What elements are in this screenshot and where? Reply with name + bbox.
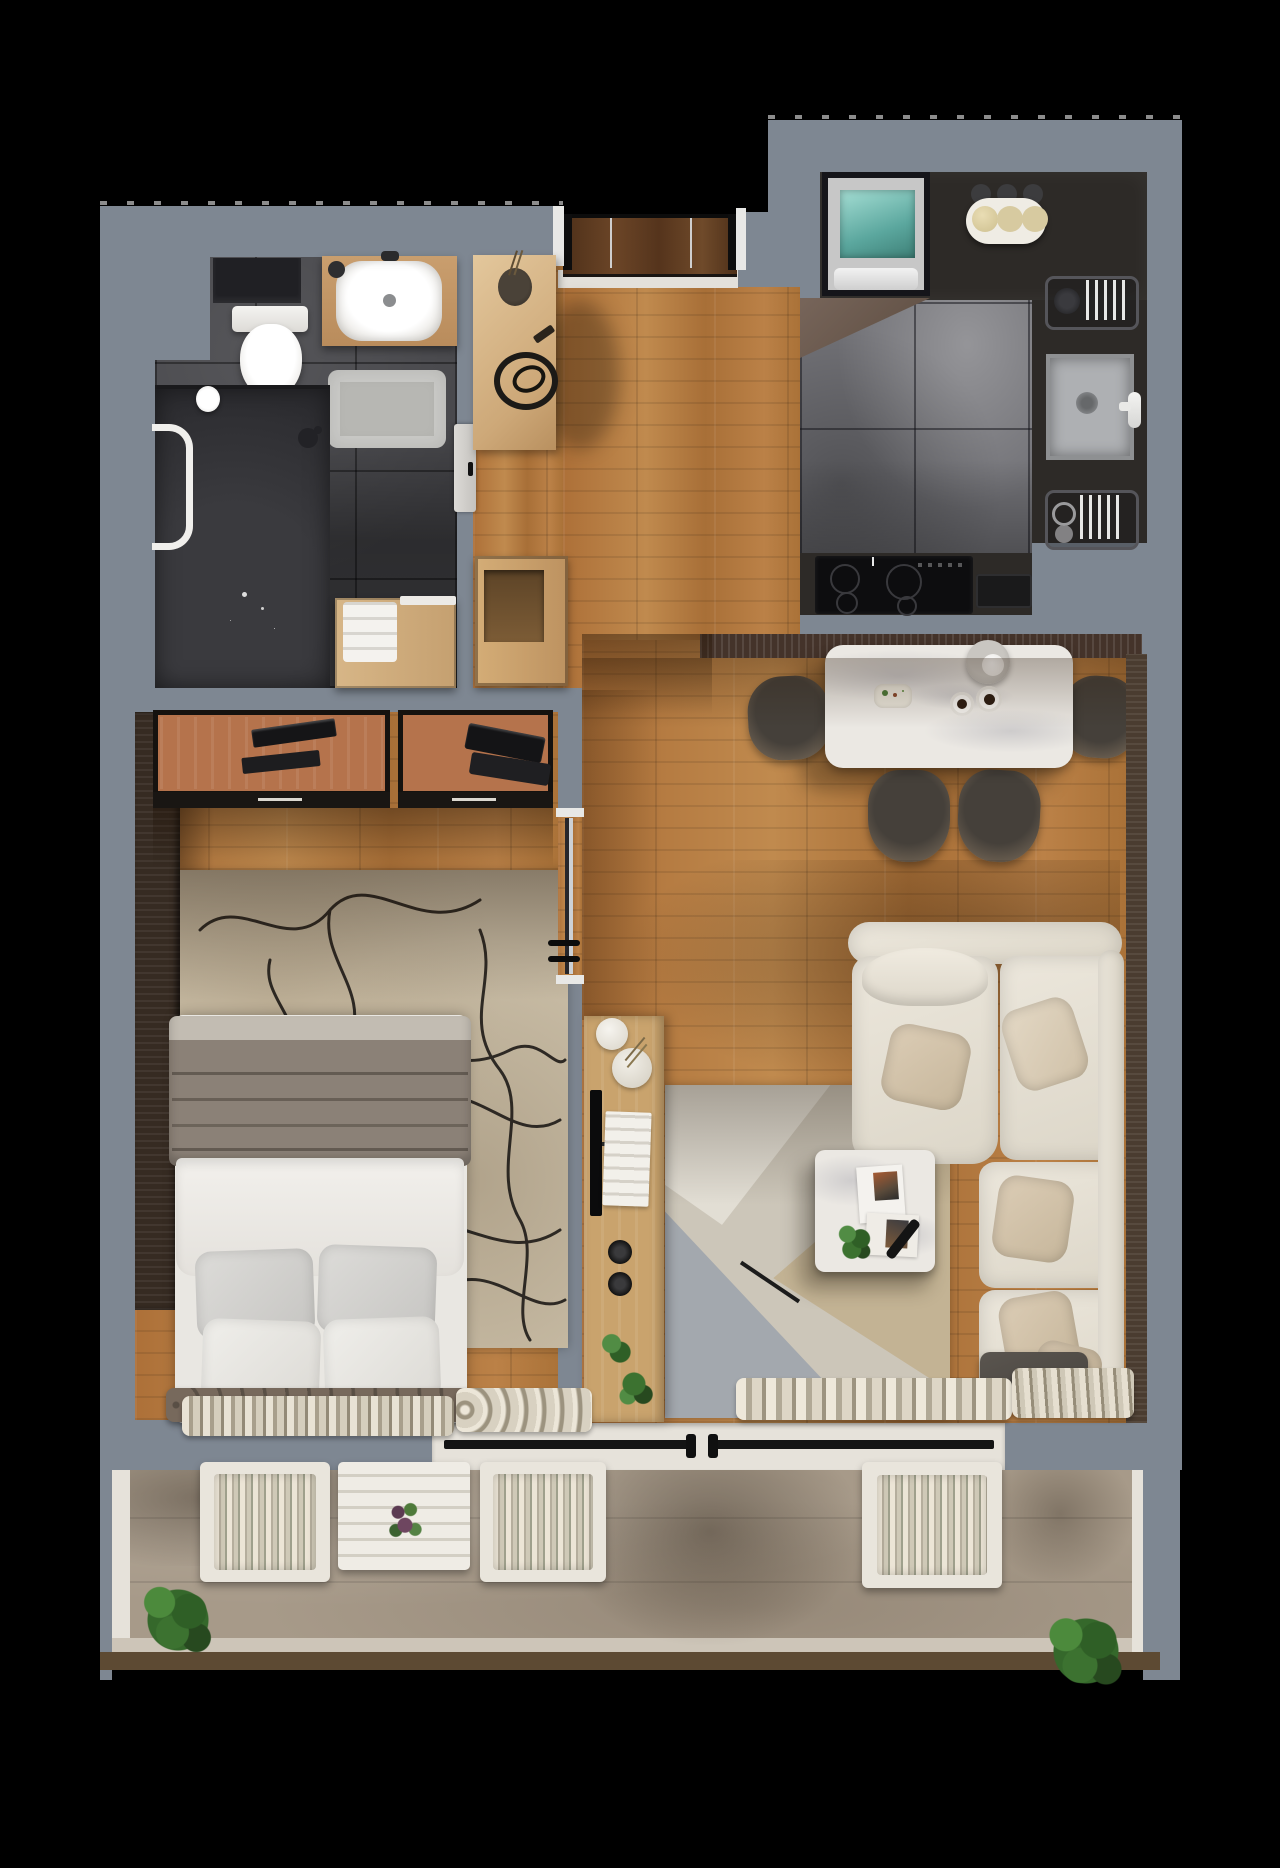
soap-dispenser-icon bbox=[328, 261, 345, 278]
balcony-door-frame-left bbox=[444, 1440, 690, 1449]
lounge-cushion bbox=[877, 1475, 987, 1575]
desk-handle-icon bbox=[258, 798, 302, 801]
balcony-wall-right-outer bbox=[1143, 1470, 1180, 1680]
fridge-glass bbox=[840, 190, 915, 258]
console-plant-icon bbox=[616, 1368, 656, 1408]
shower-divider bbox=[155, 385, 330, 389]
wall-bedroom-north bbox=[135, 688, 582, 712]
bedroom-curtain bbox=[182, 1396, 454, 1436]
entrance-door bbox=[563, 214, 737, 277]
entrance-jamb bbox=[736, 208, 746, 270]
table-plant-icon bbox=[832, 1218, 876, 1264]
balcony-door-handle-icon bbox=[686, 1434, 696, 1458]
sink-drain-icon bbox=[383, 294, 396, 307]
dish-rack-pot-icon bbox=[1054, 288, 1080, 314]
sink-faucet-icon bbox=[381, 251, 399, 261]
shoe-cabinet-inset bbox=[484, 570, 544, 642]
entrance-door-cap bbox=[563, 214, 572, 270]
towel-rail-icon bbox=[152, 424, 193, 550]
desk-shadow bbox=[153, 808, 553, 868]
door-jamb bbox=[556, 975, 584, 984]
sink-drain-icon bbox=[1076, 392, 1098, 414]
floor-plan-stage bbox=[0, 0, 1280, 1868]
blanket-fold-icon bbox=[172, 1072, 468, 1075]
balcony-edge-brown bbox=[100, 1652, 1160, 1670]
living-curtain-rolls bbox=[1012, 1368, 1134, 1418]
flower-pot-icon bbox=[382, 1494, 428, 1546]
dish-rack-plates-icon bbox=[1086, 280, 1128, 320]
sliding-door-handle-icon bbox=[548, 956, 580, 962]
laundry-top-bar bbox=[400, 596, 456, 605]
wall-bottom-right bbox=[1005, 1423, 1143, 1470]
bedroom-rug-shadow bbox=[180, 870, 568, 1000]
fridge-handle bbox=[834, 268, 918, 290]
entrance-door-seam bbox=[690, 218, 692, 268]
toilet-paper-icon bbox=[196, 386, 220, 412]
lounge-cushion bbox=[214, 1474, 316, 1570]
balcony-wall-left bbox=[112, 1470, 130, 1652]
living-top-shadow bbox=[582, 658, 1126, 728]
kitchen-floor-shadow bbox=[800, 460, 1032, 556]
bath-mat bbox=[328, 370, 446, 448]
shower-head-icon bbox=[298, 428, 318, 448]
balcony-door-handle-icon bbox=[708, 1434, 718, 1458]
burner-icon bbox=[886, 564, 922, 600]
throw-pillow bbox=[990, 1173, 1077, 1265]
sliding-door-glass bbox=[569, 818, 573, 974]
ball-vase-icon bbox=[596, 1018, 628, 1050]
kitchen-lamp-bulb-icon bbox=[972, 206, 998, 232]
shrub bbox=[132, 1576, 224, 1664]
wall-radiator bbox=[1126, 654, 1147, 1423]
sliding-door-handle-icon bbox=[548, 940, 580, 946]
bathroom-door-handle-icon bbox=[468, 462, 473, 476]
console-plant-icon bbox=[598, 1330, 632, 1364]
dish-rack-plates-icon bbox=[1080, 495, 1120, 539]
burner-icon bbox=[836, 592, 858, 614]
living-curtain bbox=[736, 1378, 1012, 1420]
dish-rack-cups-icon bbox=[1052, 502, 1076, 526]
lounge-cushion bbox=[493, 1474, 593, 1570]
desk-handle-icon bbox=[452, 798, 496, 801]
balcony-wall-right bbox=[1132, 1470, 1143, 1652]
cooktop-controls-icon bbox=[918, 563, 962, 567]
speaker-icon bbox=[608, 1272, 632, 1296]
book-stack bbox=[602, 1111, 651, 1207]
sofa-chaise-backrest bbox=[862, 948, 988, 1006]
burner-icon bbox=[830, 564, 860, 594]
bedroom-curtain-rolls bbox=[456, 1388, 592, 1432]
cutting-board bbox=[976, 574, 1032, 608]
balcony-door-frame-right bbox=[712, 1440, 994, 1449]
wall-top-dashes-kitchen bbox=[768, 115, 1182, 119]
magazine-photo-icon bbox=[873, 1171, 899, 1201]
cooktop-tick-icon bbox=[872, 557, 874, 566]
shrub bbox=[1034, 1606, 1134, 1696]
bathroom-niche bbox=[213, 258, 301, 303]
speaker-icon bbox=[608, 1240, 632, 1264]
dining-chair bbox=[868, 770, 950, 862]
console-vase-icon bbox=[498, 268, 532, 306]
bed-blanket bbox=[169, 1016, 471, 1166]
sofa-right-bolster bbox=[1098, 950, 1124, 1408]
burner-icon bbox=[897, 596, 917, 616]
entrance-door-seam bbox=[610, 218, 612, 268]
kitchen-faucet-spout-icon bbox=[1119, 402, 1131, 411]
balcony-shadow bbox=[990, 1470, 1130, 1580]
door-jamb bbox=[556, 808, 584, 817]
balcony-wall-left-outer bbox=[100, 1470, 112, 1680]
towel-stack bbox=[343, 602, 397, 662]
bathroom-wall-notch bbox=[135, 257, 210, 360]
wall-top-dashes-left bbox=[100, 201, 563, 205]
tv bbox=[590, 1090, 602, 1216]
shower-sparkle-icon bbox=[242, 592, 247, 597]
